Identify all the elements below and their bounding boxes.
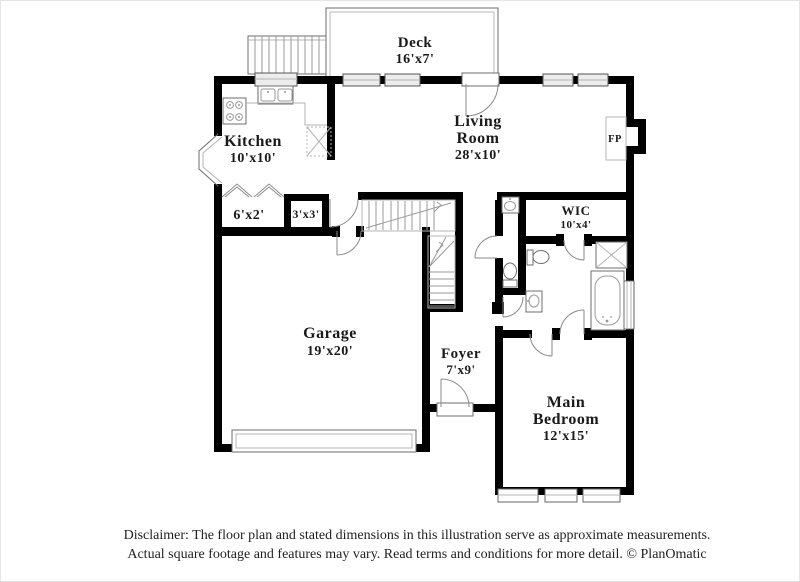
room-name: Deck [398, 35, 433, 51]
wall-garage-top [214, 227, 338, 236]
wall-kitchen-left [214, 76, 222, 136]
disclaimer: Disclaimer: The floor plan and stated di… [124, 528, 711, 562]
fireplace: FP [606, 117, 626, 160]
room-dims: 6'x2' [233, 208, 264, 223]
wall-junction-block [492, 302, 504, 314]
room-dims: 10'x4' [560, 219, 591, 231]
room-dims: 12'x15' [543, 429, 589, 444]
bay-window [199, 134, 222, 186]
fireplace-bump [638, 127, 646, 146]
window [583, 489, 620, 502]
door-jamb [332, 226, 340, 237]
bathtub-icon [591, 271, 624, 330]
kitchen-sink-icon [258, 86, 293, 104]
room-label-living-room: Living Room 28'x10' [454, 113, 501, 163]
window [543, 74, 573, 86]
deck-door-frame [462, 73, 499, 86]
room-name: Room [457, 130, 500, 147]
wall-foyer-front [470, 404, 503, 412]
door-hall-toilet [503, 297, 523, 317]
wall-right-exterior [626, 84, 634, 119]
wall-segment [608, 76, 634, 84]
window [578, 74, 608, 86]
room-name: Living [454, 113, 501, 130]
shower-icon [596, 242, 627, 268]
door-closet-hall [330, 199, 358, 227]
deck-stairs [248, 36, 326, 74]
floor-plan: FP Deck 16'x7' Kitchen 10'x10' Living Ro… [0, 0, 800, 582]
fireplace-bump [626, 146, 646, 154]
disclaimer-line-1: Disclaimer: The floor plan and stated di… [124, 528, 711, 543]
room-label-kitchen: Kitchen 10'x10' [224, 133, 282, 166]
door-bedroom [530, 334, 552, 356]
window [255, 73, 297, 86]
room-dims: 16'x7' [396, 52, 435, 67]
window [624, 281, 634, 329]
room-dims: 10'x10' [230, 151, 276, 166]
wall-wic-bottom [518, 236, 562, 244]
wall-garage-foyer-divider [422, 227, 430, 452]
room-name: Main [547, 394, 585, 411]
wall-segment [497, 76, 543, 84]
door-powder [475, 236, 497, 258]
wall-right-exterior [626, 328, 634, 494]
room-dims: 19'x20' [307, 344, 353, 359]
room-name: WIC [562, 203, 591, 218]
window [498, 489, 538, 502]
toilet-icon [503, 263, 517, 287]
interior-stairs [362, 200, 455, 308]
disclaimer-line-2: Actual square footage and features may v… [127, 547, 706, 562]
room-dims: 7'x9' [446, 362, 475, 377]
counter-edge [246, 103, 327, 125]
wall-garage-left [214, 184, 222, 452]
room-name: Kitchen [224, 133, 282, 150]
powder-sink-icon [502, 197, 519, 213]
vanity-sink-icon [526, 291, 542, 312]
wall-stair-right [455, 192, 463, 312]
wall-segment [380, 76, 385, 84]
door-wic [564, 240, 584, 260]
wall-segment [297, 76, 343, 84]
garage-door [232, 430, 416, 452]
window [545, 489, 577, 502]
wall-powder-left-lower [495, 258, 503, 304]
room-label-closet-3x3: 3'x3' [292, 207, 319, 221]
room-name: Foyer [441, 346, 481, 362]
door-jamb [552, 328, 560, 340]
wall-segment [573, 76, 578, 84]
stove-icon [223, 98, 246, 124]
room-label-wic: WIC 10'x4' [560, 203, 591, 231]
room-label-main-bedroom: Main Bedroom 12'x15' [533, 394, 599, 444]
room-name: Bedroom [533, 411, 599, 428]
room-name: Garage [303, 325, 357, 342]
room-label-garage: Garage 19'x20' [303, 325, 357, 359]
door-deck [466, 84, 498, 116]
door-jamb [584, 234, 592, 246]
room-dims: 28'x10' [455, 148, 501, 163]
window [343, 74, 380, 86]
window [385, 74, 420, 86]
wall-stair-top [358, 192, 463, 200]
room-dims: 3'x3' [292, 207, 319, 221]
wall-powder-bottom [495, 288, 526, 295]
fireplace-label: FP [608, 134, 622, 145]
door-jamb [556, 234, 564, 246]
room-label-foyer: Foyer 7'x9' [441, 346, 481, 377]
wall-bath-bedroom [495, 330, 532, 338]
toilet-icon [527, 250, 549, 265]
deck-stairs-outline [248, 36, 326, 74]
wall-segment [420, 76, 464, 84]
fireplace-bump [626, 119, 646, 127]
door-bath [560, 310, 584, 334]
room-label-closet-6x2: 6'x2' [233, 208, 264, 223]
front-door-sill [437, 403, 473, 416]
room-label-deck: Deck 16'x7' [396, 35, 435, 67]
bifold-doors [222, 184, 284, 197]
